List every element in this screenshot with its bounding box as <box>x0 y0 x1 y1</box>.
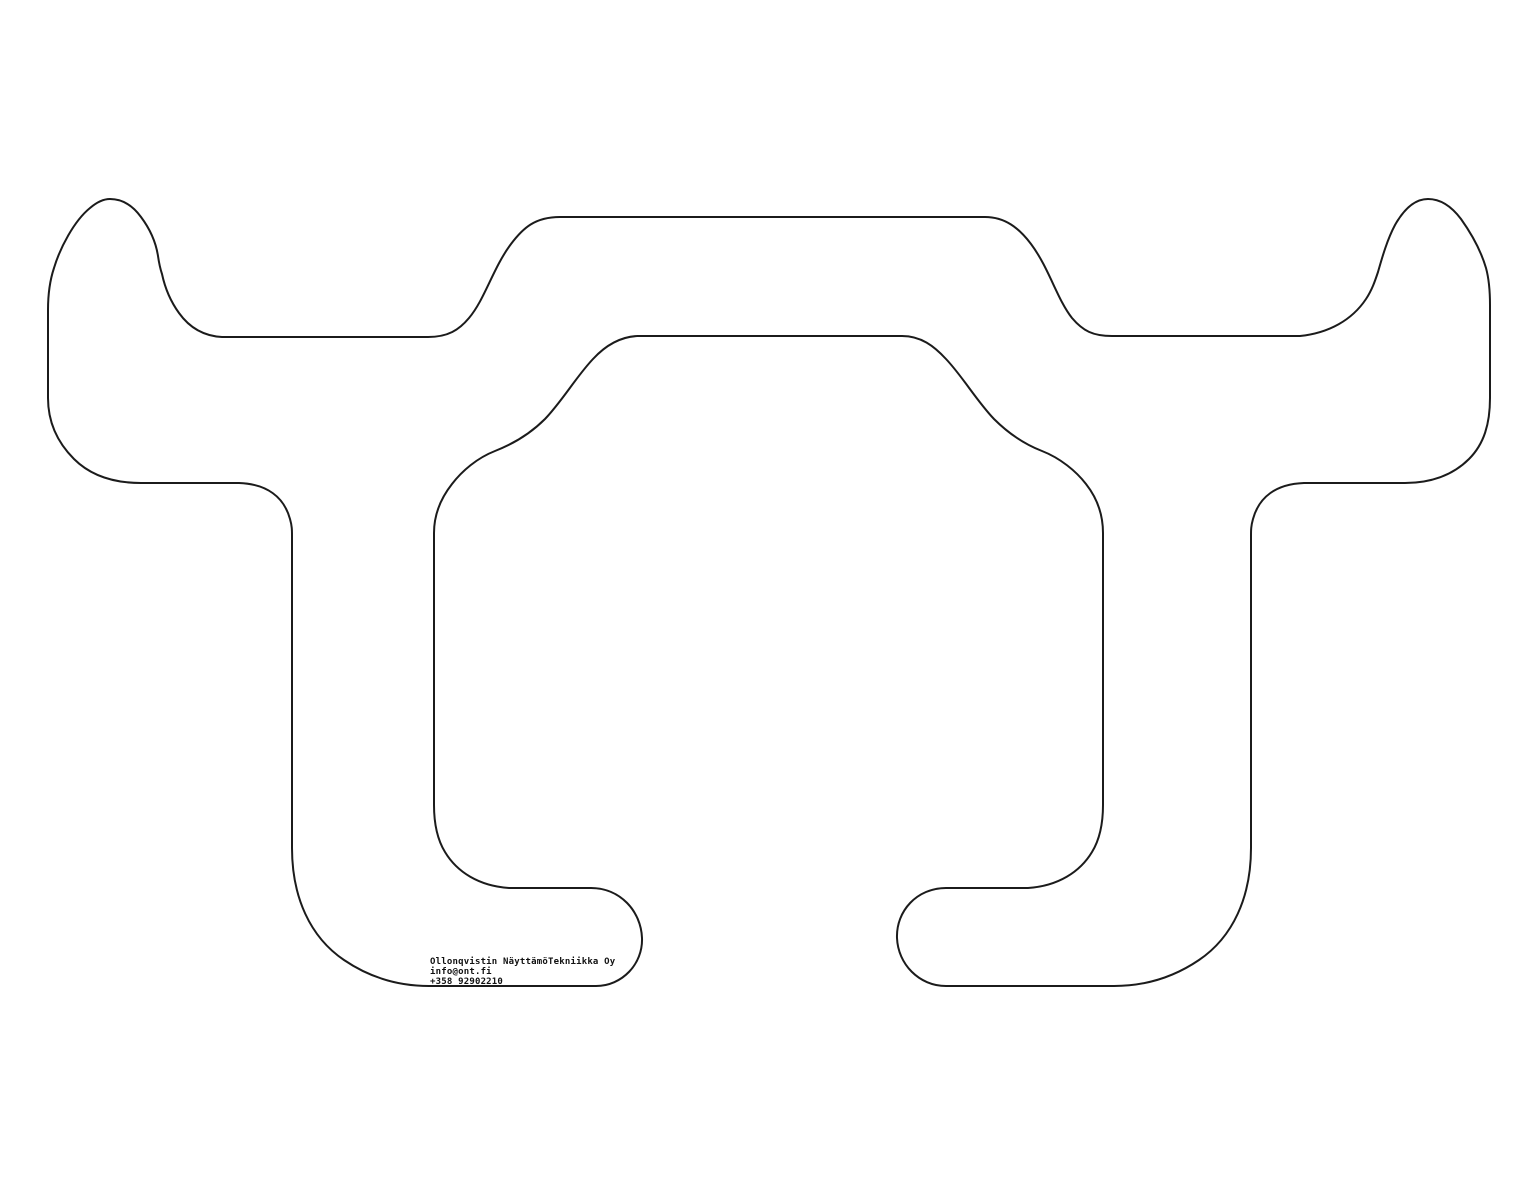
cut-outline-drawing: Ollonqvistin NäyttämöTekniikka Oy info@o… <box>0 0 1536 1187</box>
email-label: info@ont.fi <box>430 966 492 977</box>
phone-label: +358 92902210 <box>430 977 503 987</box>
shape-outline <box>48 199 1490 986</box>
page: Ollonqvistin NäyttämöTekniikka Oy info@o… <box>0 0 1536 1187</box>
company-name-label: Ollonqvistin NäyttämöTekniikka Oy <box>430 956 616 967</box>
